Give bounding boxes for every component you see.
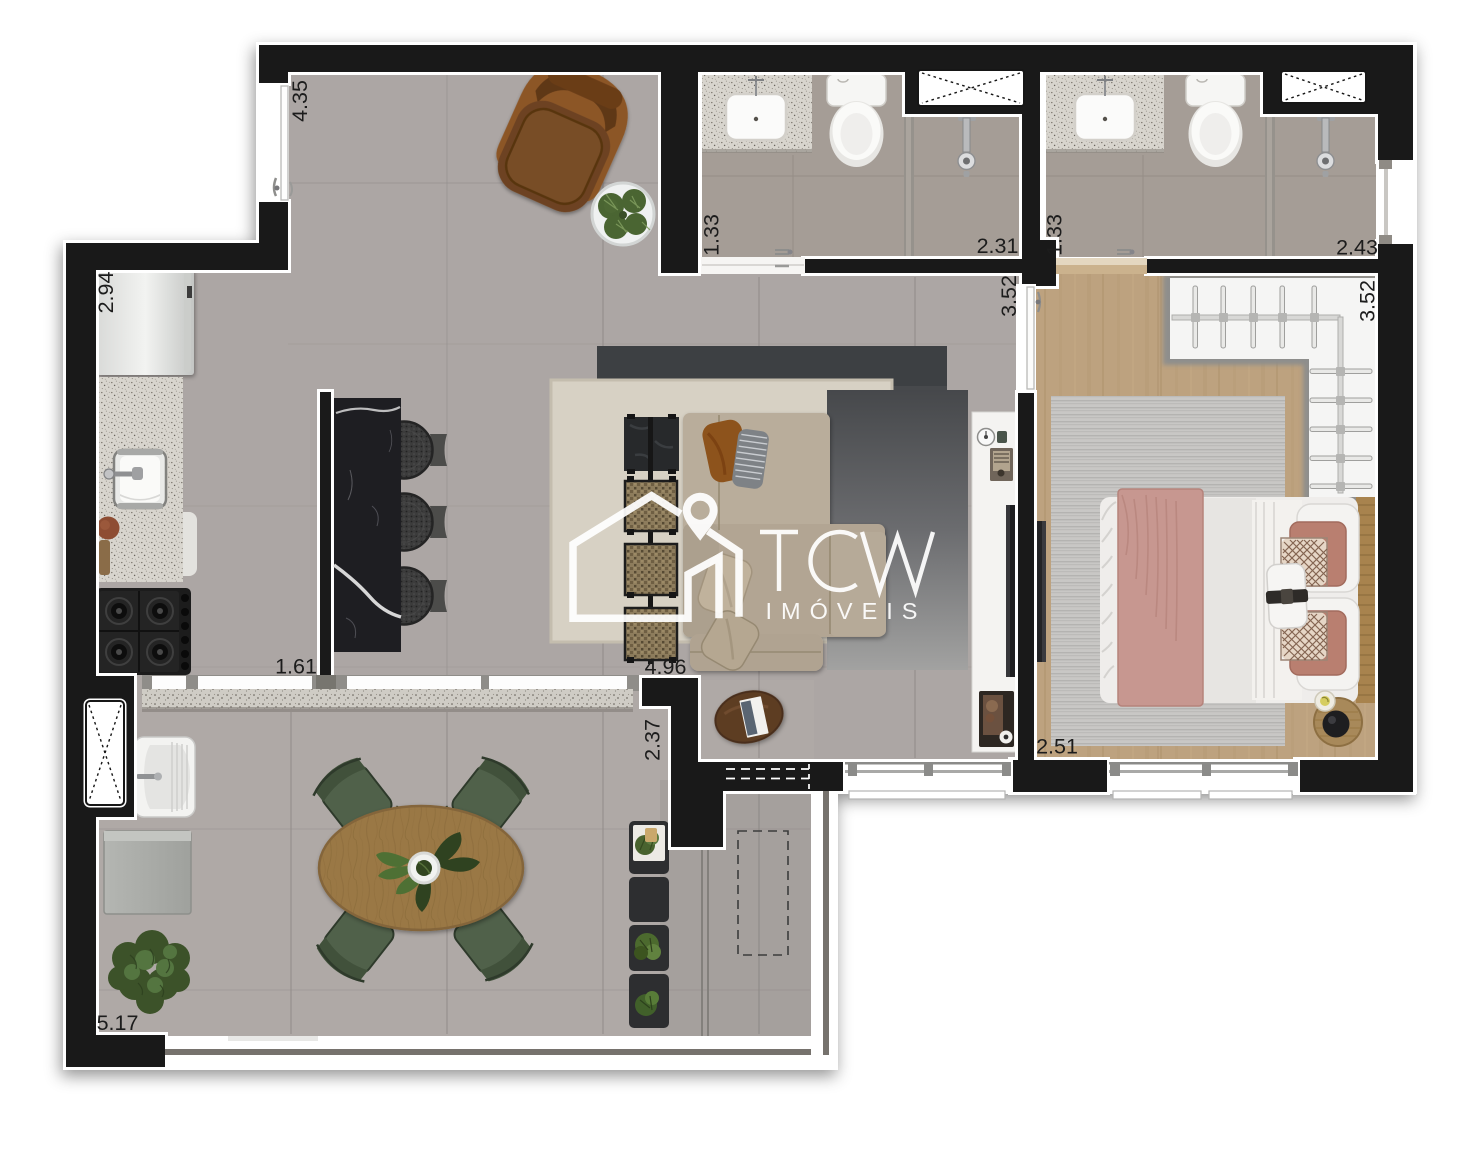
svg-text:2.94: 2.94 (94, 272, 118, 314)
svg-text:1.33: 1.33 (700, 214, 724, 256)
svg-text:5.17: 5.17 (97, 1011, 139, 1035)
svg-text:2.37: 2.37 (641, 719, 665, 761)
svg-text:1.33: 1.33 (1043, 214, 1067, 256)
svg-text:4.35: 4.35 (288, 80, 312, 122)
svg-text:2.31: 2.31 (977, 234, 1019, 258)
svg-text:2.43: 2.43 (1336, 236, 1378, 260)
svg-text:3.52: 3.52 (1356, 280, 1380, 322)
svg-text:3.52: 3.52 (997, 275, 1021, 317)
svg-text:IMÓVEIS: IMÓVEIS (766, 598, 927, 624)
svg-text:4.96: 4.96 (645, 655, 687, 679)
svg-text:2.51: 2.51 (1036, 735, 1078, 759)
svg-text:1.61: 1.61 (275, 655, 317, 679)
